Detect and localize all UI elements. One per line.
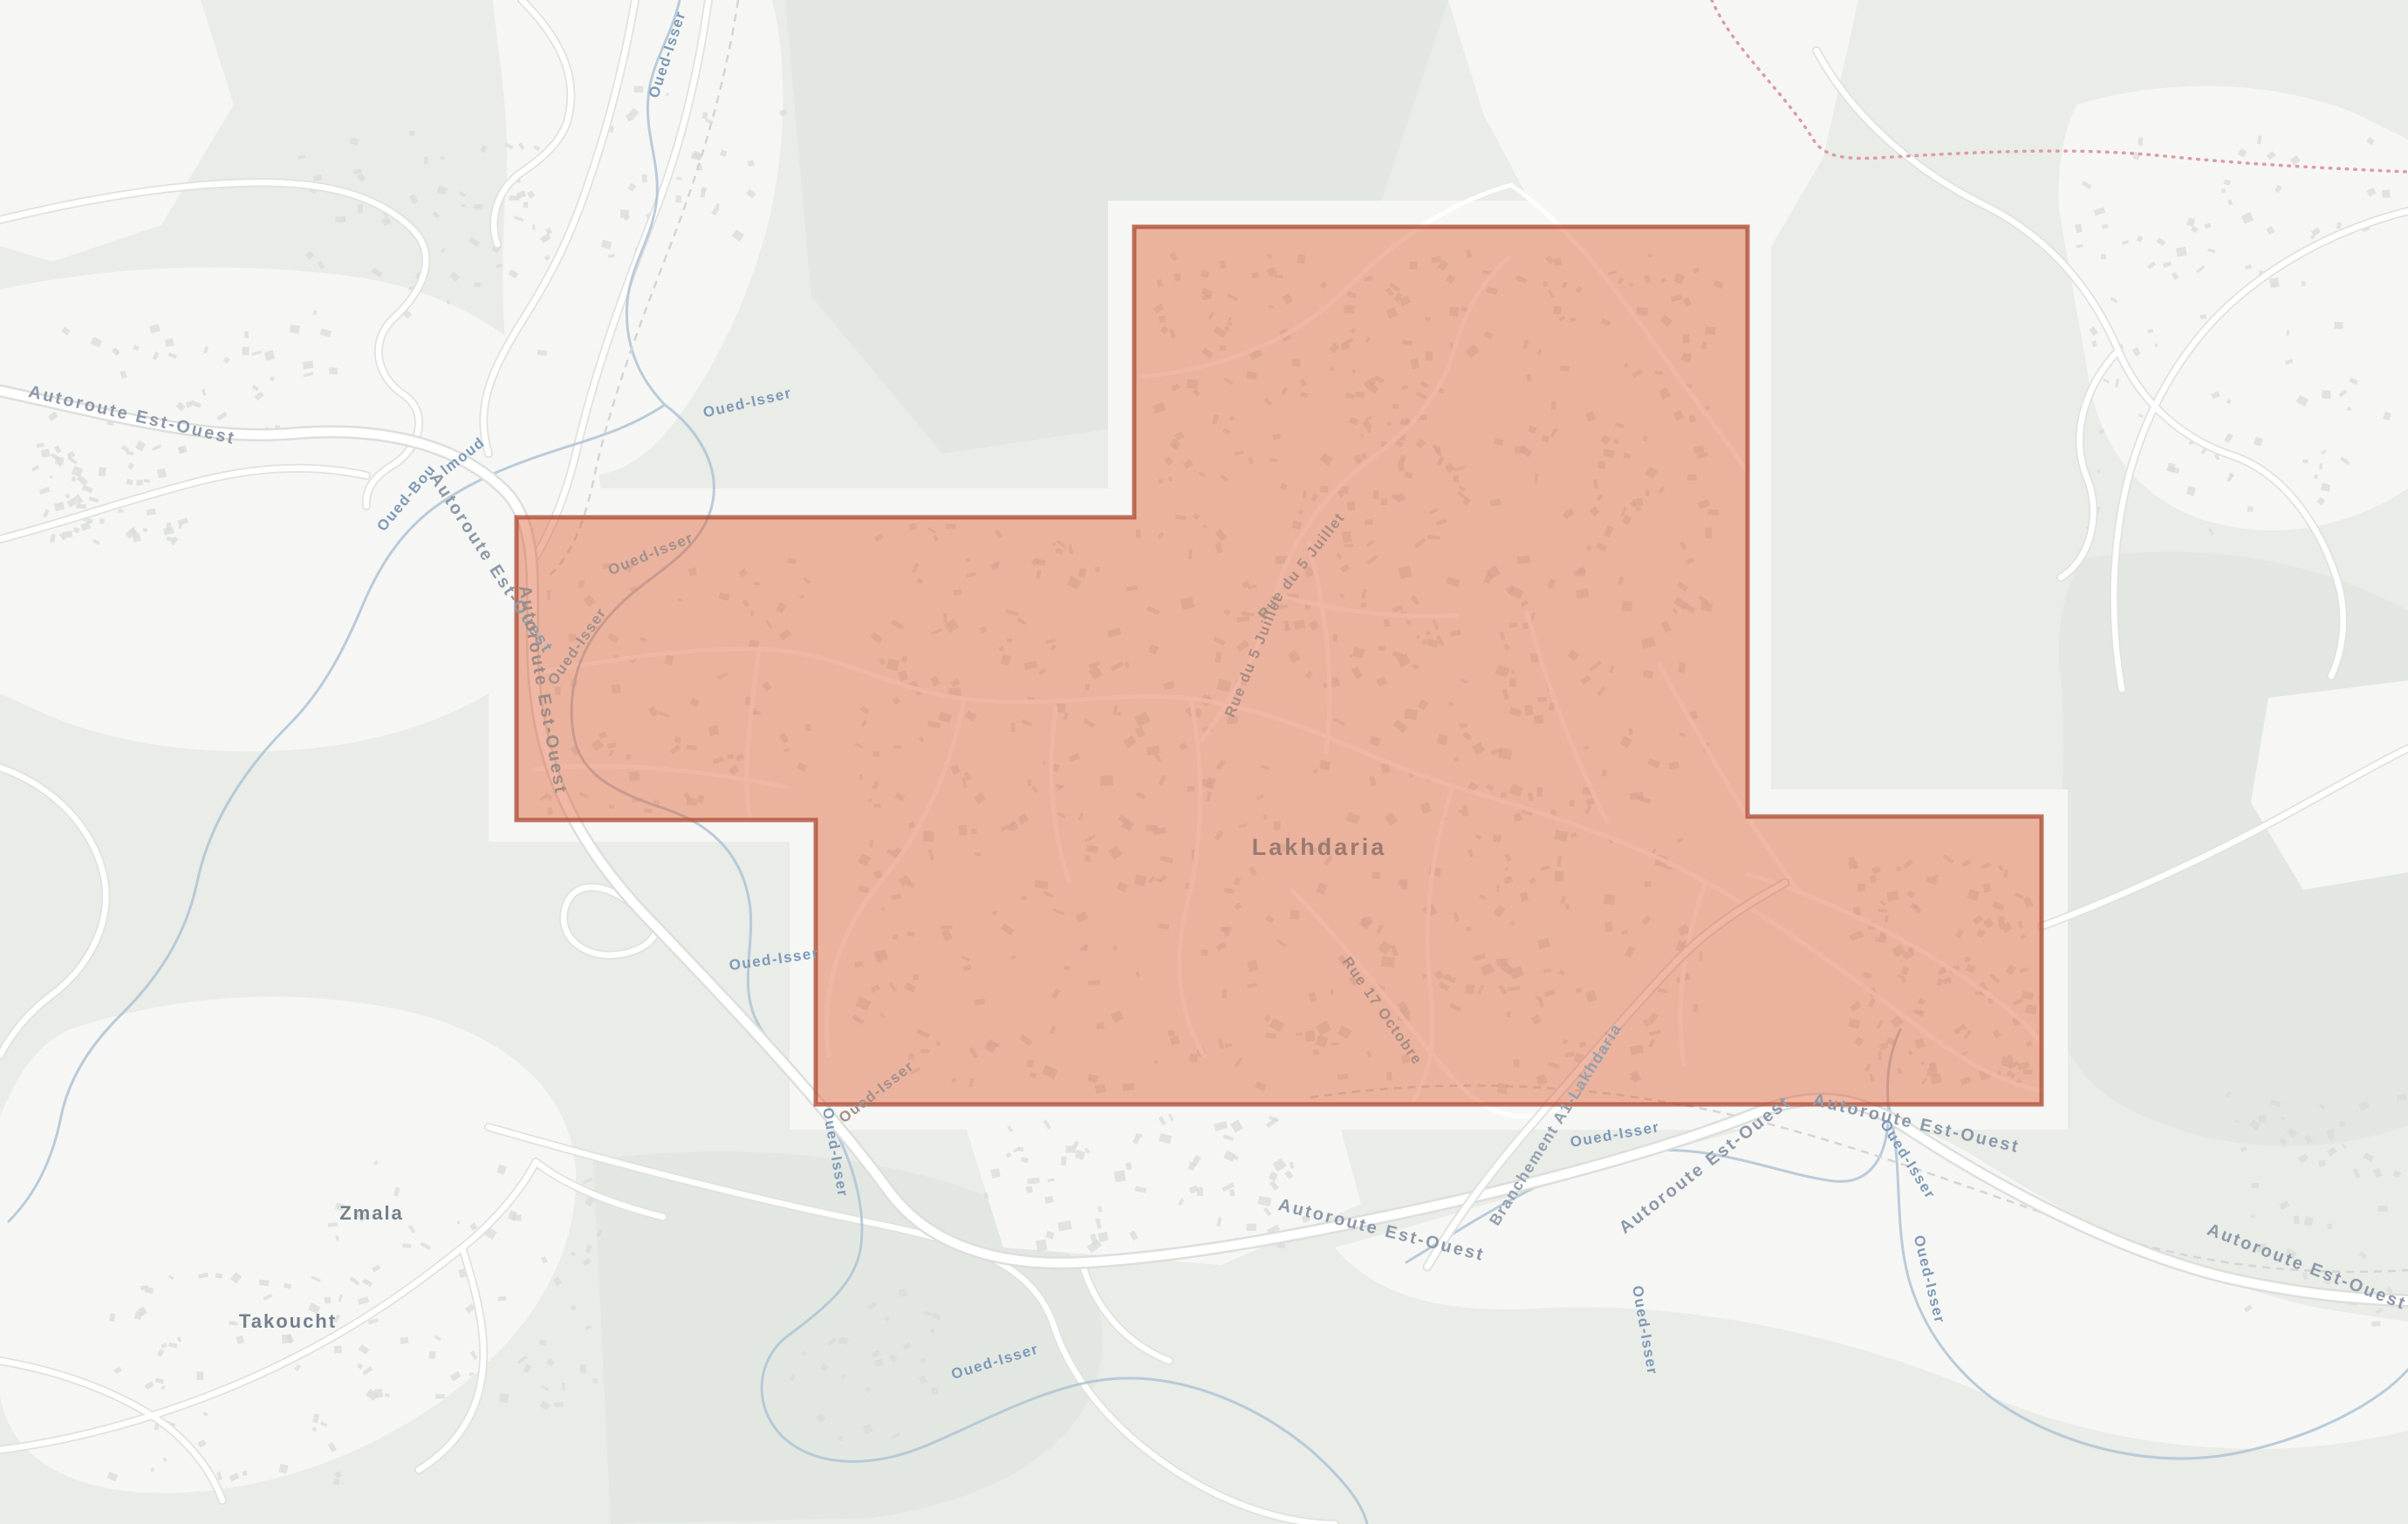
place-label-takoucht: Takoucht <box>239 1310 337 1332</box>
selected-region-polygon[interactable] <box>516 227 2042 1104</box>
river-label-oued-isser: Oued-Isser <box>701 385 793 421</box>
place-label-zmala: Zmala <box>339 1202 404 1224</box>
place-label-lakhdaria: Lakhdaria <box>1252 834 1387 860</box>
map-canvas[interactable]: Autoroute Est-Ouest Autoroute Est-Ouest … <box>0 0 2408 1524</box>
